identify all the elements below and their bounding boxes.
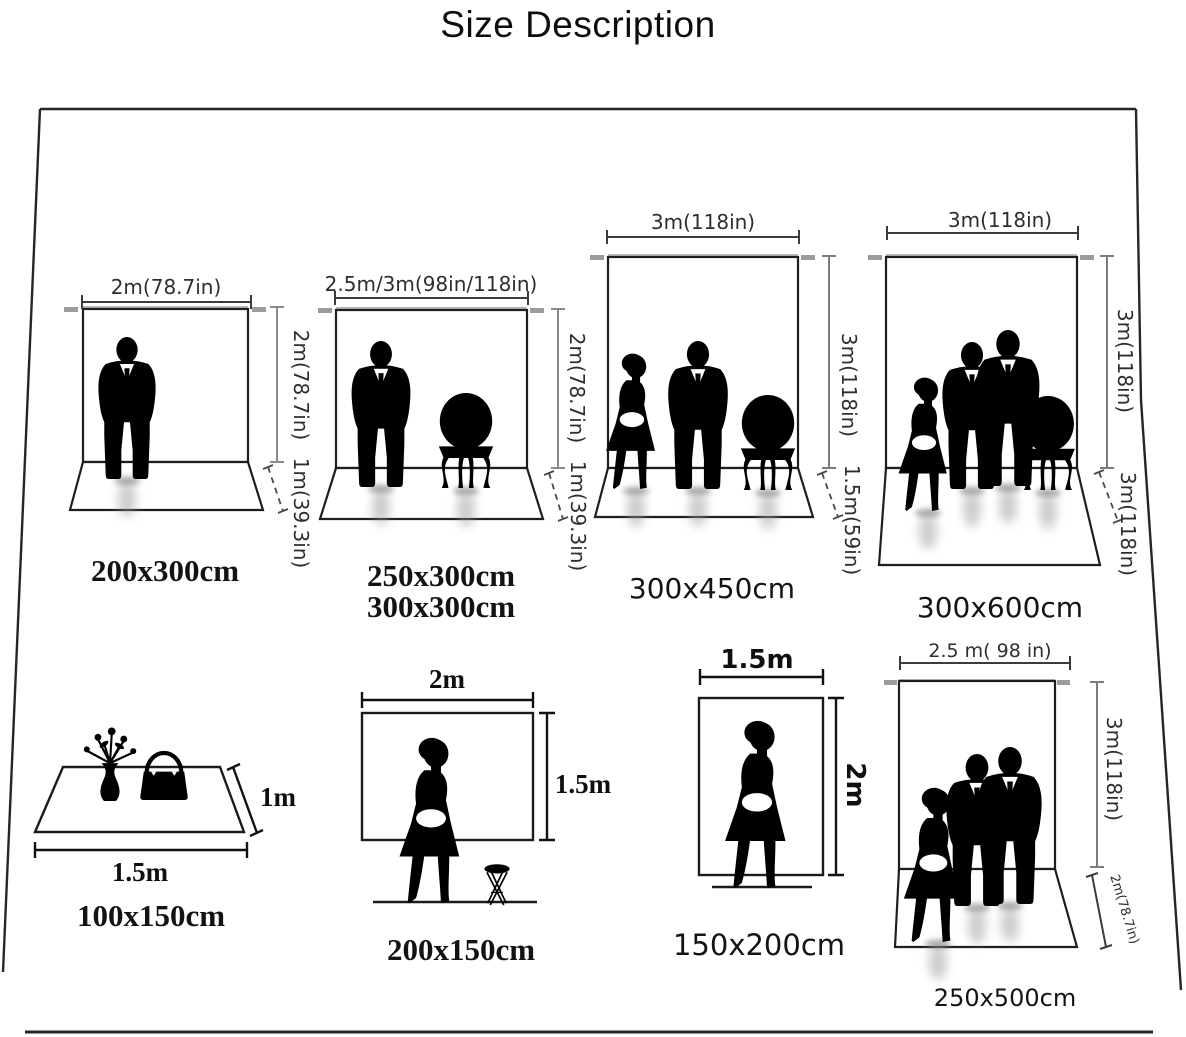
page-title: Size Description [378, 4, 778, 46]
backdrop-200x150 [362, 692, 555, 905]
d3-width-label: 3m(118in) [603, 210, 803, 234]
backdrop-250x300 [318, 291, 568, 527]
d6-height-label: 1.5m [543, 769, 623, 800]
d5-height-label: 1m [248, 782, 308, 813]
d5-width-label: 1.5m [90, 857, 190, 888]
d8-width-label: 2.5 m( 98 in) [890, 640, 1090, 662]
d2-floor-label: 1m(39.3in) [566, 406, 590, 626]
d1-floor-label: 1m(39.3in) [289, 403, 313, 623]
d4-caption: 300x600cm [900, 591, 1100, 624]
d4-floor-label: 3m(118in) [1116, 414, 1140, 634]
d8-caption: 250x500cm [905, 984, 1105, 1012]
d7-height-label: 2m [840, 735, 870, 835]
d3-floor-label: 1.5m(59in) [840, 410, 864, 630]
d7-width-label: 1.5m [707, 645, 807, 675]
size-description-infographic: Size Description 2m(78.7in) 2m(78.7in) 1… [0, 0, 1186, 1037]
backdrop-150x200 [699, 669, 844, 888]
backdrop-300x600 [868, 226, 1123, 565]
d1-caption: 200x300cm [65, 553, 265, 589]
d6-width-label: 2m [407, 664, 487, 695]
backdrop-200x300 [64, 295, 288, 517]
backdrop-250x500 [884, 656, 1112, 980]
d3-caption: 300x450cm [612, 572, 812, 605]
d1-width-label: 2m(78.7in) [66, 275, 266, 299]
d7-caption: 150x200cm [659, 928, 859, 962]
mat-100x150 [35, 727, 263, 858]
d6-caption: 200x150cm [361, 932, 561, 968]
d2-width-label: 2.5m/3m(98in/118in) [281, 272, 581, 296]
backdrop-300x450 [590, 230, 843, 529]
d5-caption: 100x150cm [51, 898, 251, 934]
d4-width-label: 3m(118in) [900, 208, 1100, 232]
d2-caption-line2: 300x300cm [341, 589, 541, 625]
